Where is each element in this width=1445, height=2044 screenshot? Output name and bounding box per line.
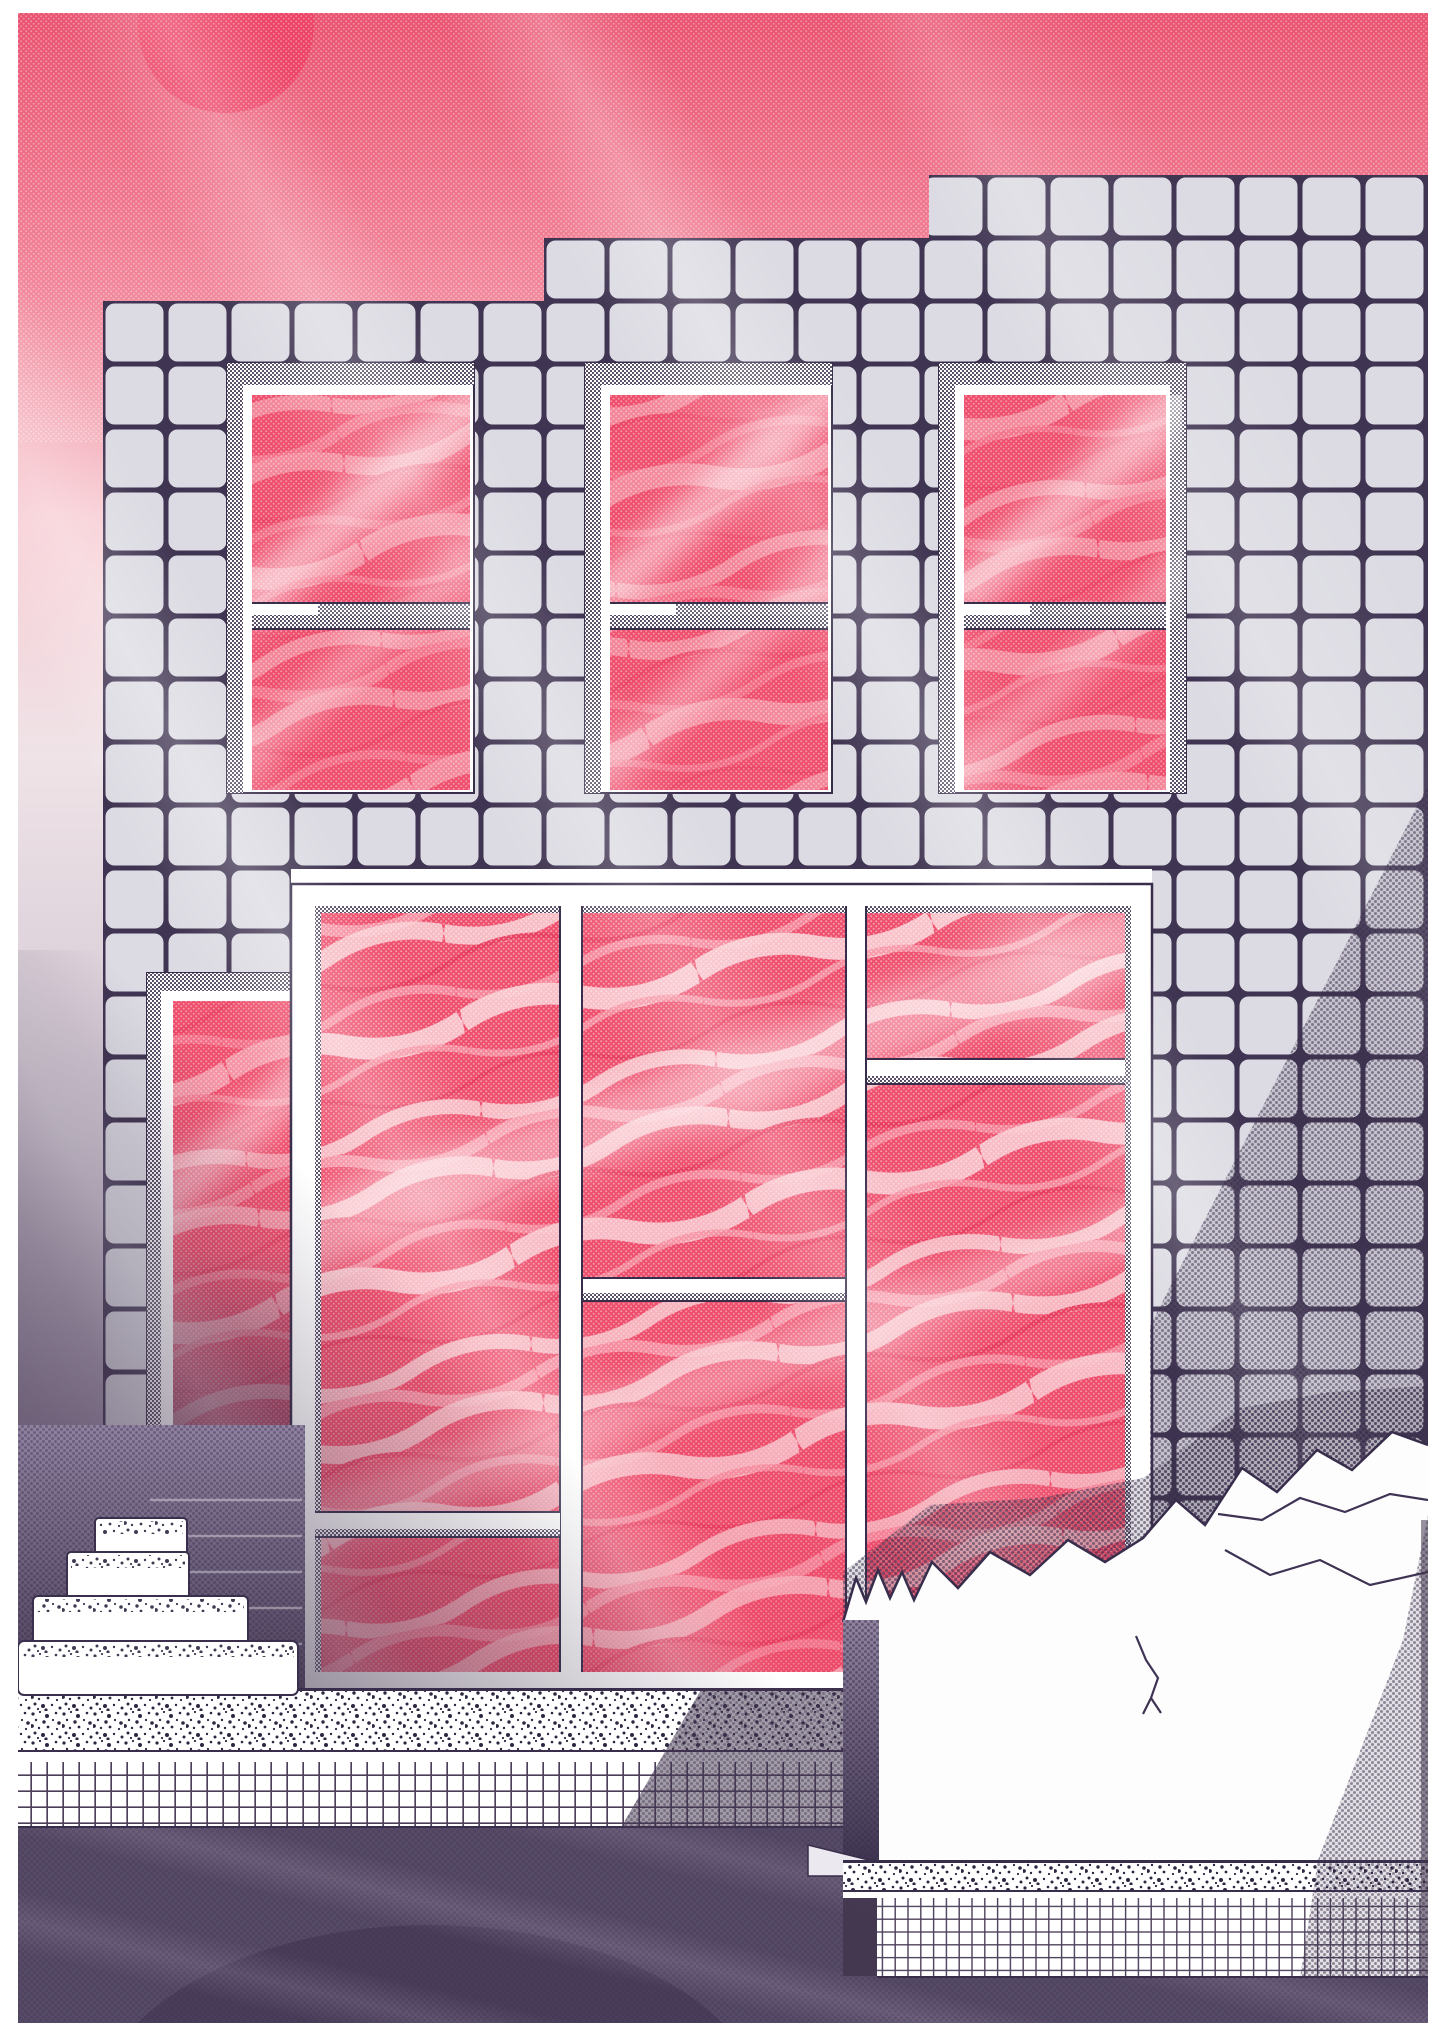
wall-base-left-shade bbox=[843, 1898, 877, 1976]
step-2-tread bbox=[71, 1555, 185, 1568]
artwork-area bbox=[18, 0, 1428, 2044]
poster-artwork bbox=[0, 0, 1445, 2044]
step-4-tread bbox=[22, 1644, 294, 1657]
right-edge-dark-strip bbox=[1421, 1520, 1428, 1978]
cracked-wall-left-face-halftone bbox=[843, 1620, 879, 1864]
step-3-tread bbox=[37, 1599, 244, 1612]
step-1-tread bbox=[99, 1521, 183, 1534]
